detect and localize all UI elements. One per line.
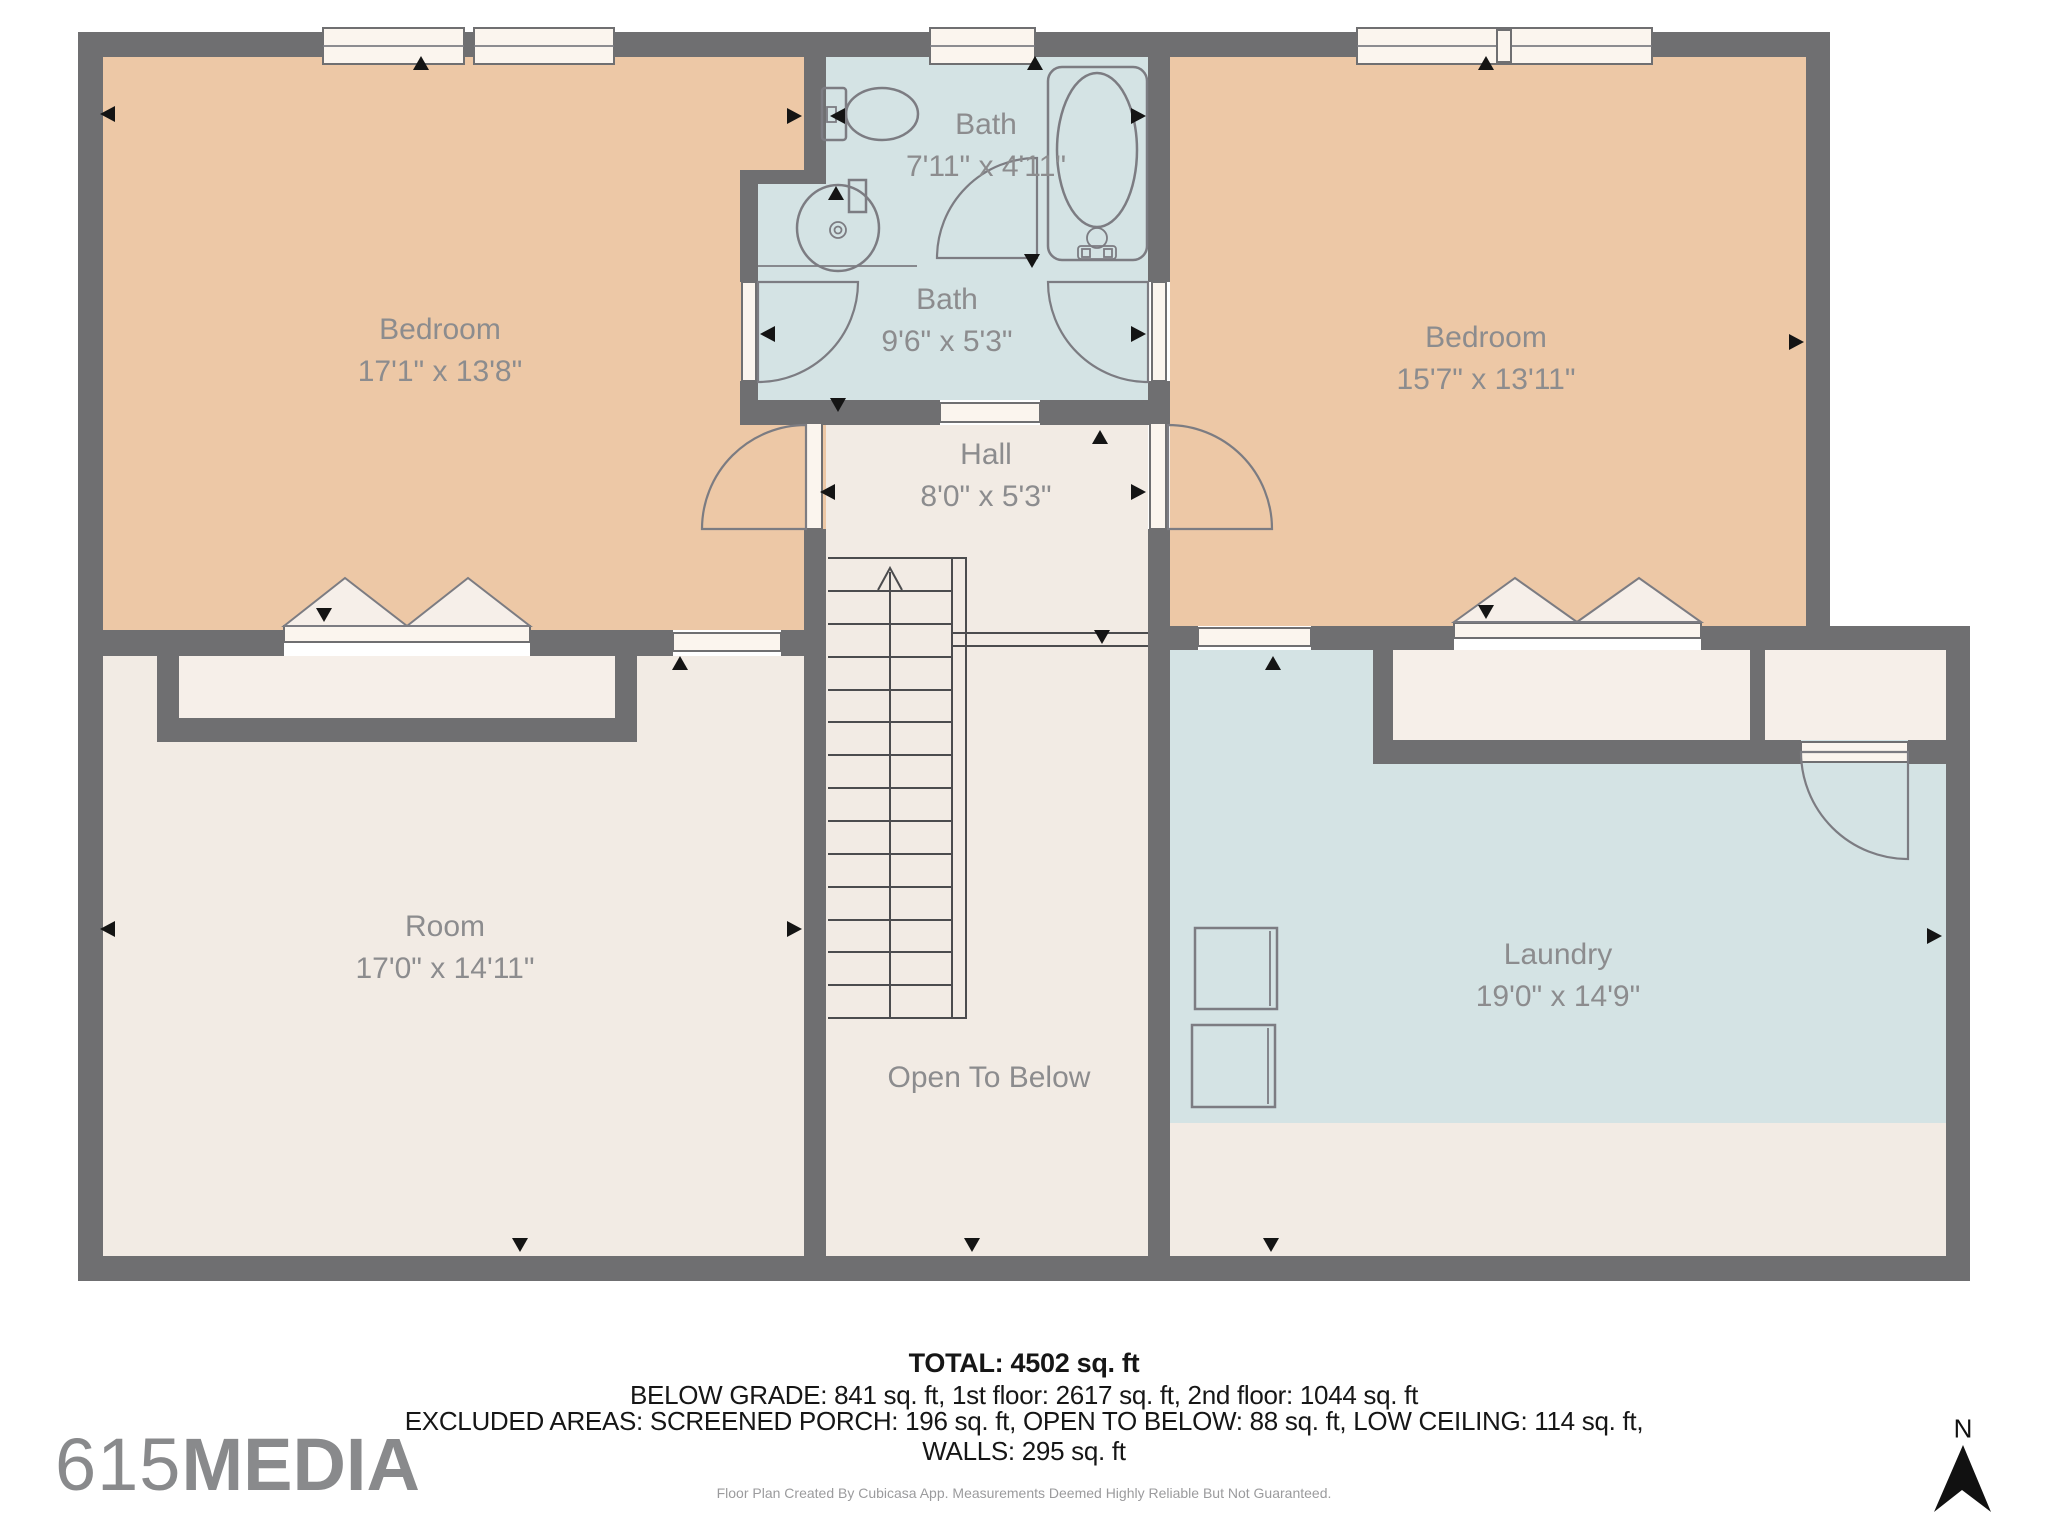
room-dimensions: 7'11" x 4'11" [906, 146, 1066, 188]
wall [1908, 740, 1946, 764]
wall [103, 630, 284, 656]
compass-north-label: N [1954, 1414, 1973, 1445]
room-label-open-to-below: Open To Below [888, 1057, 1091, 1099]
room-label-bedroom-right: Bedroom 15'7" x 13'11" [1397, 317, 1576, 401]
laundry-closets-floor [1393, 650, 1946, 740]
wall [1148, 650, 1170, 1256]
wall [804, 656, 826, 1256]
room-name: Bedroom [1397, 317, 1576, 359]
room-name: Bedroom [358, 309, 523, 351]
room-dimensions: 17'0" x 14'11" [356, 948, 535, 990]
wall [1806, 626, 1970, 650]
wall [740, 170, 826, 184]
window-divider [1497, 30, 1511, 62]
wall [1750, 650, 1765, 740]
hall-and-stairwell-floor [826, 425, 1148, 1256]
wall [740, 184, 758, 270]
room-name: Hall [920, 434, 1051, 476]
bifold-sill [1454, 623, 1701, 638]
wall [615, 656, 637, 718]
wall [1806, 32, 1830, 650]
wall [1373, 740, 1801, 764]
room-closet-floor [179, 656, 615, 718]
wall [1148, 57, 1170, 282]
logo-615media: 615MEDIA [55, 1428, 420, 1502]
room-label-laundry: Laundry 19'0" x 14'9" [1476, 934, 1641, 1018]
wall [740, 270, 758, 282]
wall [530, 630, 673, 656]
wall [78, 32, 103, 1281]
wall [1148, 626, 1198, 650]
room-dimensions: 19'0" x 14'9" [1476, 976, 1641, 1018]
room-label-bath-top: Bath 7'11" x 4'11" [906, 104, 1066, 188]
logo-name: MEDIA [181, 1423, 419, 1506]
floor-plan-drawing [0, 0, 2048, 1536]
logo-prefix: 615 [55, 1423, 181, 1506]
doorway-threshold [1198, 628, 1311, 646]
wall [1040, 400, 1148, 425]
room-label-bedroom-left: Bedroom 17'1" x 13'8" [358, 309, 523, 393]
bath-sink-alcove-floor [758, 184, 826, 400]
summary-total: TOTAL: 4502 sq. ft [0, 1348, 2048, 1379]
door-slab [1152, 282, 1166, 381]
wall [78, 1256, 1970, 1281]
room-dimensions: 15'7" x 13'11" [1397, 359, 1576, 401]
room-dimensions: 8'0" x 5'3" [920, 476, 1051, 518]
room-name: Room [356, 906, 535, 948]
wall [1311, 626, 1454, 650]
room-name: Bath [906, 104, 1066, 146]
bifold-sill [284, 626, 530, 642]
room-name: Bath [881, 279, 1012, 321]
wall [157, 718, 637, 742]
door-slab [1150, 423, 1166, 529]
door-slab [742, 282, 756, 381]
room-dimensions: 17'1" x 13'8" [358, 351, 523, 393]
wall [1946, 626, 1970, 1281]
laundry-lower-strip-floor [1170, 1123, 1946, 1256]
wall [781, 630, 826, 656]
room-label-bath-middle: Bath 9'6" x 5'3" [881, 279, 1012, 363]
room-label-hall: Hall 8'0" x 5'3" [920, 434, 1051, 518]
windows [323, 28, 1652, 64]
doorway-threshold [673, 633, 781, 651]
room-dimensions: 9'6" x 5'3" [881, 321, 1012, 363]
floor-plan-page: Bedroom 17'1" x 13'8" Bath 7'11" x 4'11"… [0, 0, 2048, 1536]
room-label-room: Room 17'0" x 14'11" [356, 906, 535, 990]
room-name: Open To Below [888, 1057, 1091, 1099]
wall [1148, 381, 1170, 425]
doorway-threshold [940, 403, 1040, 422]
room-name: Laundry [1476, 934, 1641, 976]
wall [1701, 626, 1806, 650]
door-slab [806, 423, 822, 529]
